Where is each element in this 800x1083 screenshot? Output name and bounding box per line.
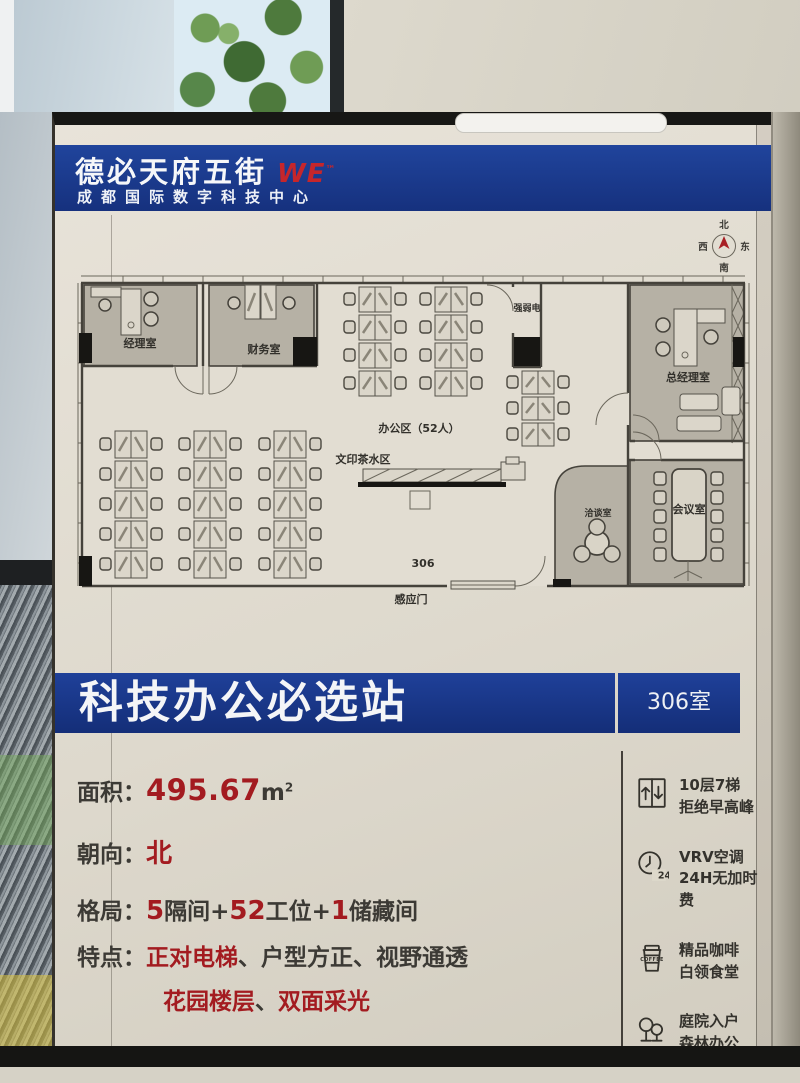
coffee-icon: COFFEE: [635, 941, 669, 975]
clock-24-icon: 24: [635, 848, 669, 882]
facing-value: 北: [146, 839, 172, 869]
glossy-wall: [344, 0, 800, 112]
property-details: 面积：495.67m2 朝向：北 格局：5隔间+52工位+1储藏间 特点：正对电…: [77, 773, 617, 1016]
sensor-door-label: 感应门: [395, 592, 428, 606]
features-row: 特点：正对电梯、户型方正、视野通透: [77, 938, 617, 972]
area-value: 495.67: [146, 773, 261, 807]
elevator-icon: [635, 776, 669, 810]
amenity-elevator: 10层7梯 拒绝早高峰: [635, 775, 765, 819]
amenity-coffee: COFFEE 精品咖啡 白领食堂: [635, 940, 765, 984]
carpet-yellow-stripe: [0, 975, 52, 1050]
finance-office-label: 财务室: [247, 342, 281, 356]
area-row: 面积：495.67m2: [77, 773, 617, 807]
floorplan-svg: 经理室 财务室 强弱电 办公区（52人） 文印茶水区 总经理室 会议室 洽谈室 …: [77, 273, 752, 613]
room-number-badge: 306室: [618, 673, 740, 733]
poster: 德必天府五街WE™ 成都国际数字科技中心 北 东 南 西: [52, 112, 771, 1061]
compass-west-label: 西: [698, 242, 708, 253]
banner-title: 科技办公必选站: [55, 673, 615, 733]
room-number-label: 306: [412, 557, 435, 570]
glass-panel: [14, 0, 174, 112]
compass-east-label: 东: [740, 241, 750, 253]
banner-main: 科技办公必选站: [55, 673, 615, 733]
floorplan: 经理室 财务室 强弱电 办公区（52人） 文印茶水区 总经理室 会议室 洽谈室 …: [77, 273, 752, 613]
amenity-hvac: 24 VRV空调 24H无加时费: [635, 847, 765, 912]
floor-edge: [0, 1046, 800, 1067]
details-divider: [621, 751, 623, 1053]
printer: [501, 462, 525, 480]
wall-left-edge: [0, 0, 14, 112]
brand-name: 德必天府五街: [75, 155, 267, 189]
negotiation-room-label: 洽谈室: [584, 507, 611, 519]
left-glass-wall: [0, 112, 52, 564]
header-band: 德必天府五街WE™ 成都国际数字科技中心: [55, 145, 771, 211]
amenities-list: 10层7梯 拒绝早高峰 24 VRV空调 24H无加时费 COFFEE: [635, 775, 765, 1083]
manager-office-label: 经理室: [124, 336, 157, 350]
poster-right-edge: [768, 112, 800, 1067]
open-office-label: 办公区（52人）: [378, 421, 459, 435]
title-banner: 科技办公必选站 306室: [55, 673, 771, 733]
brand-mark-we: WE™: [277, 159, 336, 189]
brand-logo: 德必天府五街WE™: [75, 149, 336, 191]
compass-north-arrow: [719, 236, 730, 249]
gm-office-label: 总经理室: [666, 370, 710, 384]
photo-of-floorplan-poster: { "header": { "brand": "德必天府五街", "brand_…: [0, 0, 800, 1067]
electrical-room-label: 强弱电: [513, 302, 540, 314]
svg-text:COFFEE: COFFEE: [640, 957, 664, 963]
print-tea-area-label: 文印茶水区: [336, 452, 391, 466]
carpet-green-stripe: [0, 755, 52, 845]
compass-south-label: 南: [719, 262, 729, 273]
window-frame: [330, 0, 344, 112]
layout-row: 格局：5隔间+52工位+1储藏间: [77, 892, 617, 926]
compass-north-label: 北: [719, 219, 729, 231]
window-trees: [174, 0, 330, 112]
compass: 北 东 南 西: [695, 215, 753, 273]
svg-text:24: 24: [658, 870, 669, 881]
trees-icon: [635, 1012, 669, 1046]
facing-row: 朝向：北: [77, 833, 617, 870]
poster-top-clip: [455, 113, 667, 133]
meeting-room-label: 会议室: [673, 502, 706, 516]
features-row-2: 花园楼层、双面采光: [77, 982, 617, 1016]
floor-frame-bar: [0, 560, 52, 588]
brand-subtitle: 成都国际数字科技中心: [77, 186, 317, 207]
